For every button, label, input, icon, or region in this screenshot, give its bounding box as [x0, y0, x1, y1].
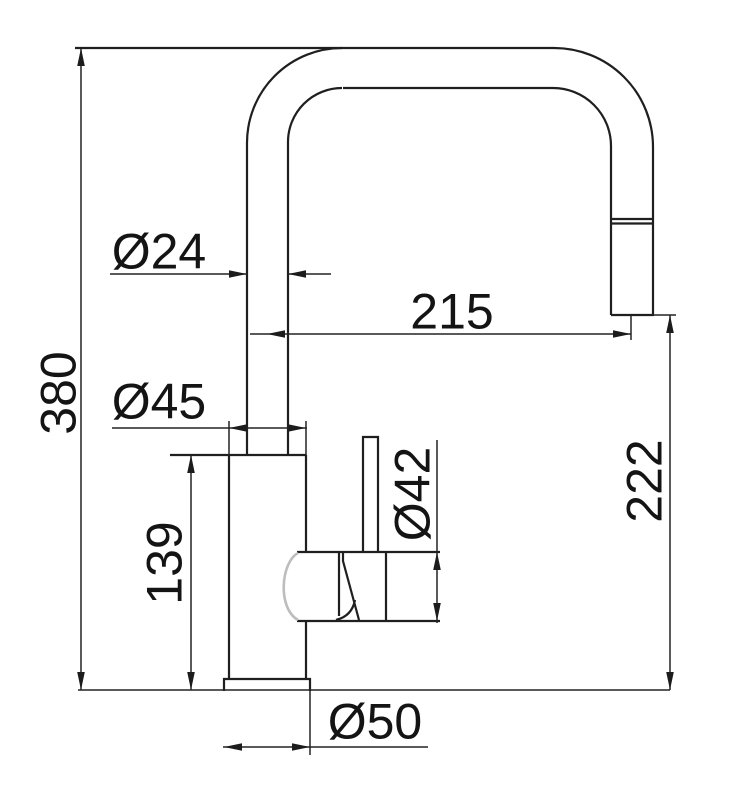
dim-base-diameter-label: Ø50 [328, 694, 423, 750]
dim-cartridge-diameter: Ø42 [385, 440, 441, 623]
dim-body-height-arrow-bottom [187, 672, 195, 690]
dim-body-diameter-arrow-right [288, 424, 306, 432]
dim-spout-reach-arrow-right [613, 330, 631, 338]
lever-pivot-detail [336, 552, 359, 620]
spray-head-joint-lines [611, 219, 653, 224]
dim-body-height-label: 139 [137, 521, 193, 604]
riser-outer-line [247, 48, 342, 455]
dim-body-height: 139 [137, 455, 195, 690]
body-side-edges [229, 455, 306, 679]
dim-body-height-arrow-top [187, 455, 195, 473]
technical-drawing-canvas: 380 Ø24 215 Ø45 139 Ø42 [0, 0, 729, 800]
dim-overall-height: 380 [31, 48, 87, 690]
dim-outlet-height-label: 222 [617, 439, 673, 522]
dim-base-diameter-arrow-left [224, 743, 242, 751]
riser-inner-line [288, 88, 342, 455]
lever-rod [363, 437, 378, 552]
lever-housing [297, 552, 440, 621]
dim-body-diameter-label: Ø45 [112, 374, 207, 430]
dim-overall-height-arrow-top [77, 48, 85, 66]
dim-overall-height-label: 380 [31, 351, 87, 434]
dim-spout-diameter-arrow-left [229, 270, 247, 278]
housing-cap-arc [284, 553, 298, 620]
dim-overall-height-arrow-bottom [77, 672, 85, 690]
dim-body-diameter-arrow-left [229, 424, 247, 432]
dim-spout-reach: 215 [250, 284, 631, 340]
dim-cartridge-diameter-arrow-top [433, 552, 441, 570]
base-flange [224, 679, 310, 691]
dim-spout-diameter-arrow-right [288, 270, 306, 278]
dim-spout-reach-label: 215 [410, 284, 493, 340]
spout-inner-contour [343, 88, 611, 315]
dim-cartridge-diameter-arrow-bottom [433, 603, 441, 621]
dim-spout-diameter-label: Ø24 [112, 224, 207, 280]
dim-base-diameter-arrow-right [292, 743, 310, 751]
dim-base-diameter: Ø50 [223, 694, 428, 751]
dim-spout-reach-arrow-left [267, 330, 285, 338]
dim-cartridge-diameter-label: Ø42 [385, 447, 441, 542]
faucet-dimension-drawing: 380 Ø24 215 Ø45 139 Ø42 [0, 0, 729, 800]
dim-spout-diameter: Ø24 [110, 224, 331, 280]
dim-outlet-height: 222 [617, 315, 674, 690]
dim-outlet-height-arrow-top [666, 315, 674, 333]
dim-outlet-height-arrow-bottom [666, 672, 674, 690]
dim-body-diameter: Ø45 [112, 374, 307, 432]
